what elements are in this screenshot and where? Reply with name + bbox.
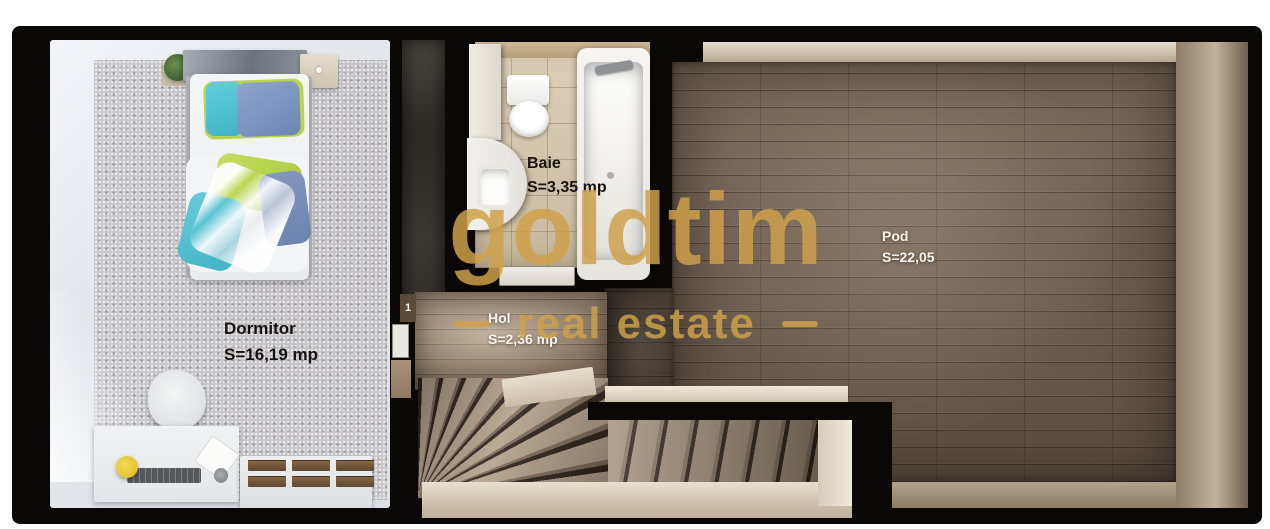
- room-label-pod: Pod S=22,05: [882, 226, 935, 268]
- room-label-hol: Hol S=2,36 mp: [488, 308, 558, 350]
- toilet-bowl: [509, 101, 549, 137]
- bathtub-drain: [607, 172, 614, 179]
- room-area-baie: S=3,35 mp: [527, 176, 607, 200]
- storage-box: [292, 476, 330, 487]
- plan-frame: Dormitor S=16,19 mp Baie S=3,35 mp: [12, 26, 1262, 524]
- storage-box: [248, 476, 286, 487]
- room-area-pod: S=22,05: [882, 247, 935, 268]
- nightstand-knob: [316, 67, 322, 73]
- pod-wall-right: [1176, 42, 1248, 508]
- storage-box: [292, 460, 330, 471]
- door-number: 1: [405, 302, 411, 314]
- stairwell-ledge: [605, 386, 848, 402]
- keyboard: [127, 468, 201, 483]
- storage-box: [336, 460, 374, 471]
- stairwell-wall-right: [818, 420, 852, 506]
- room-label-dormitor: Dormitor S=16,19 mp: [224, 316, 318, 367]
- desk-chair: [148, 370, 206, 430]
- wall-horizontal: [588, 402, 892, 420]
- room-name-dormitor: Dormitor: [224, 316, 318, 342]
- room-dormitor: Dormitor S=16,19 mp: [50, 40, 390, 508]
- wall-vertical: [852, 402, 892, 524]
- floor-plan-image: Dormitor S=16,19 mp Baie S=3,35 mp: [0, 0, 1270, 529]
- room-area-dormitor: S=16,19 mp: [224, 342, 318, 368]
- storage-cabinet: [240, 456, 372, 508]
- room-name-pod: Pod: [882, 226, 935, 247]
- sink-basin: [477, 165, 513, 209]
- room-name-hol: Hol: [488, 308, 558, 329]
- storage-box: [248, 460, 286, 471]
- pod-wall-bottom: [890, 482, 1176, 508]
- bathroom-cabinet: [469, 44, 501, 140]
- hol-door: [392, 324, 409, 358]
- closet-strip: [402, 40, 445, 306]
- pod-wall-top: [703, 42, 1176, 62]
- desk-lamp: [116, 456, 138, 478]
- straight-stairs: [608, 418, 820, 486]
- stairwell-wall-bottom: [422, 482, 852, 518]
- baie-door: [499, 266, 575, 286]
- room-area-hol: S=2,36 mp: [488, 329, 558, 350]
- pillow-blue: [236, 81, 301, 137]
- storage-box: [336, 476, 374, 487]
- door-number-plate: 1: [400, 294, 416, 322]
- hol-wall-patch: [391, 360, 411, 398]
- room-name-baie: Baie: [527, 152, 607, 176]
- mug: [214, 468, 228, 483]
- room-label-baie: Baie S=3,35 mp: [527, 152, 607, 200]
